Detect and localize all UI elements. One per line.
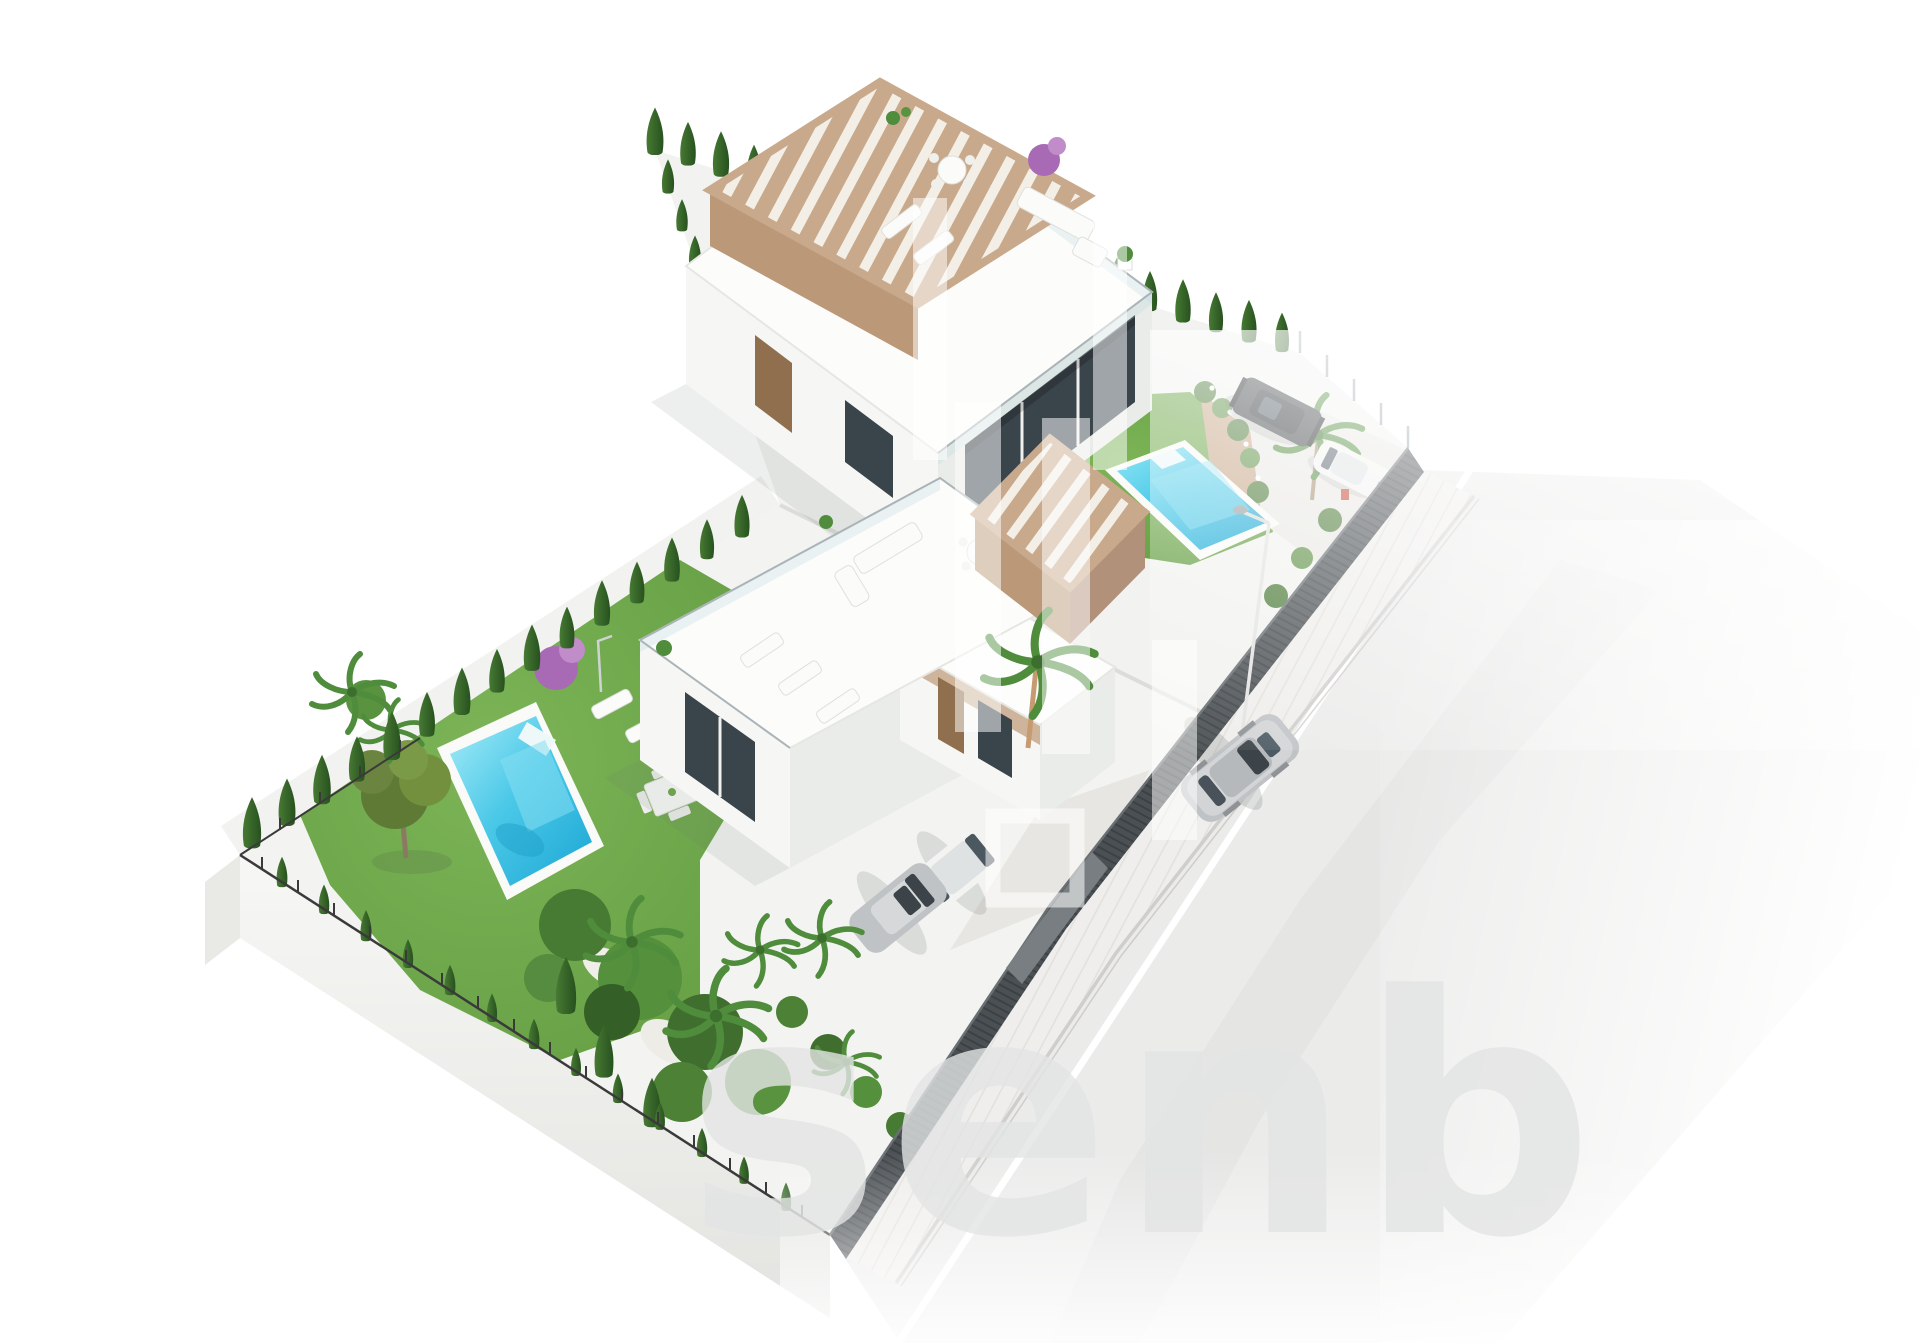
render-canvas: senb: [0, 0, 1920, 1343]
watermark-fragment: [1152, 640, 1197, 840]
watermark-fragment: [913, 198, 947, 460]
scene: senb: [0, 0, 1920, 1343]
watermark-fragment: [1093, 212, 1127, 470]
watermark-fragment: [955, 402, 1001, 732]
watermark-fragment: [1042, 418, 1090, 754]
retaining-wall-cap: [205, 855, 240, 965]
watermark-text: senb: [685, 926, 1600, 1310]
